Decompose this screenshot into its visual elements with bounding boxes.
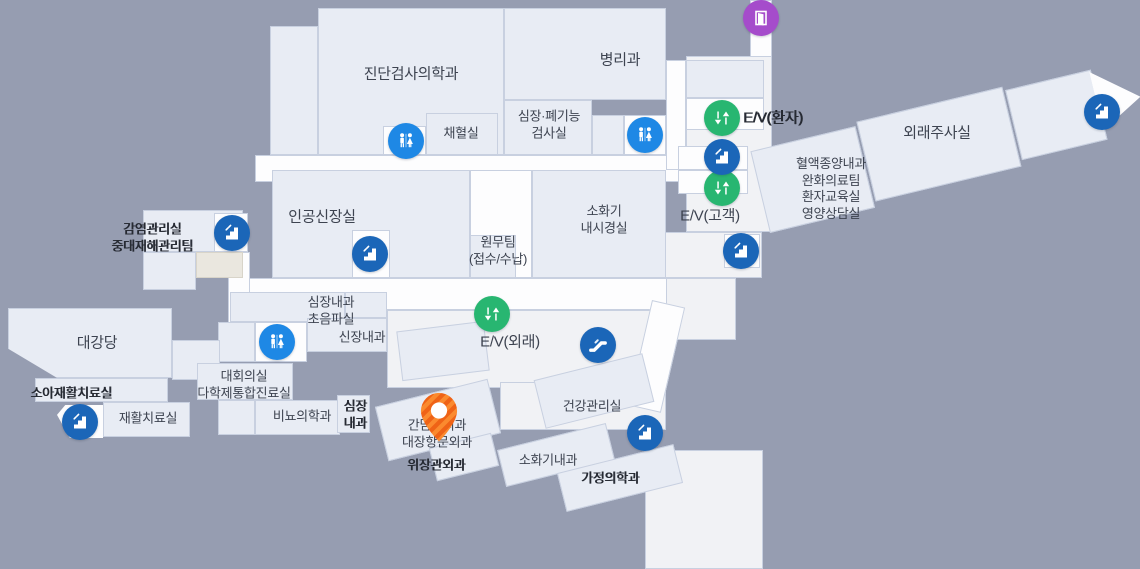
ev-label: E/V(고객): [680, 206, 740, 225]
room-label: 소화기내과: [519, 453, 577, 470]
room-label: 대강당: [77, 333, 118, 352]
room-label: 소화기 내시경실: [581, 203, 628, 236]
room-label: 건강관리실: [563, 399, 621, 416]
room-outpatient-injection: [856, 87, 1021, 202]
stairs-icon: [723, 233, 759, 269]
stairs-icon: [62, 404, 98, 440]
room-label: 심장 내과: [343, 398, 366, 431]
room-label: 비뇨의학과: [273, 409, 331, 426]
room-label: 신장내과: [339, 330, 386, 347]
room-ev-top: [686, 60, 764, 98]
location-pin: [419, 391, 459, 444]
ev-label: E/V(환자): [743, 108, 803, 127]
room-label: 대회의실 다학제통합진료실: [197, 368, 290, 401]
room-label: 소아재활치료실: [30, 386, 112, 403]
room-label: 위장관외과: [407, 458, 465, 475]
room-label: 외래주사실: [903, 123, 971, 142]
restroom-icon: [259, 324, 295, 360]
room-label: 재활치료실: [119, 411, 177, 428]
room-lab-west: [270, 26, 318, 155]
room-unlabeled-1: [592, 115, 624, 155]
stairs-icon: [352, 236, 388, 272]
room-label: 혈액종양내과 완화의료팀 환자교육실 영양상담실: [796, 156, 866, 223]
stairs-icon: [704, 139, 740, 175]
room-label: 진단검사의학과: [364, 64, 459, 83]
room-label: 심장·폐기능 검사실: [518, 108, 580, 141]
room-label: 감염관리실 중대재해관리팀: [111, 221, 193, 254]
elevator-icon: [474, 296, 510, 332]
ev-label: E/V(외래): [480, 332, 540, 351]
restroom-icon: [388, 123, 424, 159]
escalator-icon: [580, 327, 616, 363]
stairs-icon: [627, 415, 663, 451]
room-label: 인공신장실: [288, 207, 356, 226]
room-unlabeled-5: [218, 322, 255, 362]
elevator-icon: [704, 100, 740, 136]
elevator-icon: [704, 170, 740, 206]
room-unlabeled-6: [396, 321, 489, 381]
room-label: 병리과: [600, 50, 641, 69]
floor-map: 진단검사의학과 병리과 채혈실 심장·폐기능 검사실 E/V(환자) 혈액종양내…: [0, 0, 1140, 569]
stairs-icon: [1084, 94, 1120, 130]
stairs-icon: [214, 215, 250, 251]
room-pathology: [504, 8, 666, 100]
door-icon: [743, 0, 779, 36]
restroom-icon: [627, 117, 663, 153]
room-unlabeled-8: [218, 400, 255, 435]
room-label: 원무팀 (접수/수납): [469, 234, 527, 267]
room-service-beige: [196, 252, 243, 278]
room-unlabeled-3: [143, 252, 196, 290]
room-label: 채혈실: [444, 126, 479, 143]
room-label: 심장내과 초음파실: [308, 294, 355, 327]
room-label: 가정의학과: [581, 471, 639, 488]
